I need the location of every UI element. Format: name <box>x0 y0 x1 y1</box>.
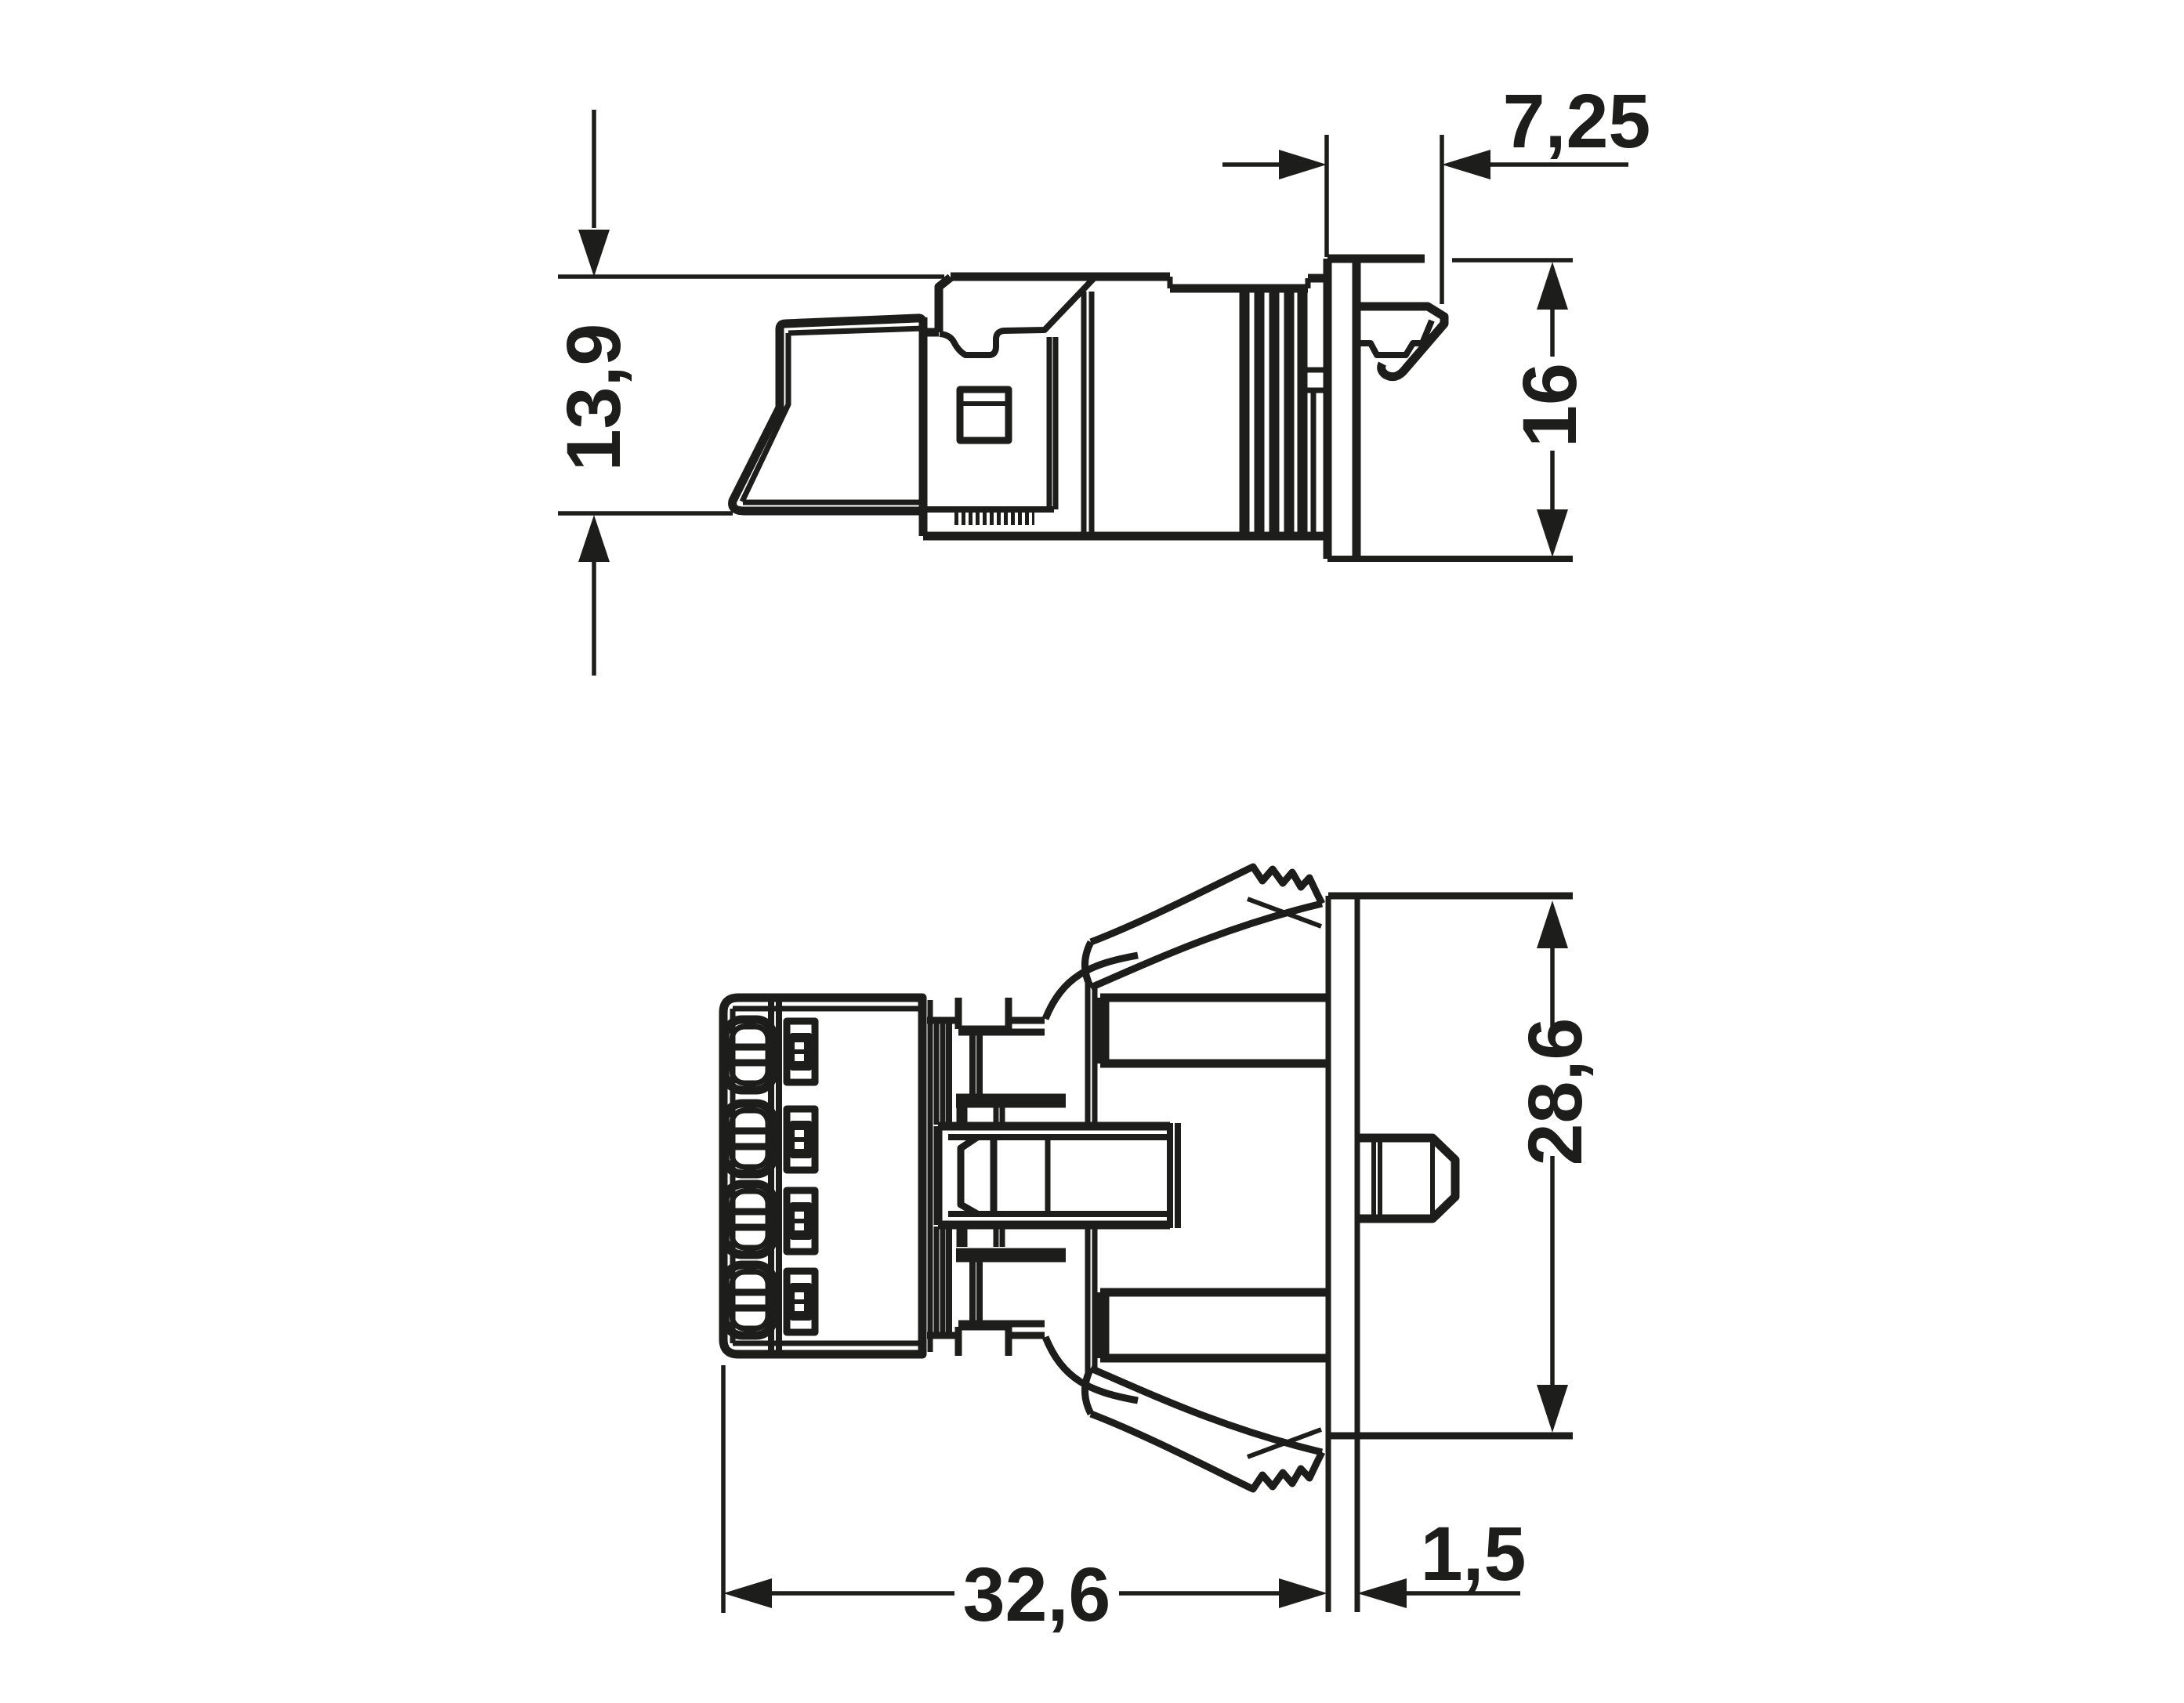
lower-rail-pair <box>956 1252 1066 1259</box>
barrel-joint-lines <box>1049 337 1056 509</box>
pole-opening-3 <box>725 1184 773 1255</box>
pole-inner <box>732 1027 768 1083</box>
latch-hook-face <box>961 1137 994 1214</box>
clamp-slot-3 <box>787 1190 815 1252</box>
spring-upper-edge <box>1091 867 1322 942</box>
housing <box>923 277 1327 536</box>
dimension-1-5: 1,5 <box>1357 1511 1526 1608</box>
dimension-7-25: 7,25 <box>1222 78 1650 304</box>
technical-drawing: 7,25 13,9 16 <box>0 0 2184 1703</box>
dimension-label: 28,6 <box>1512 1018 1598 1166</box>
arrowhead-left <box>1279 150 1327 179</box>
pole-inner <box>732 1191 768 1248</box>
clamp-slot-1 <box>787 1021 815 1082</box>
barrel-rim-lines <box>1084 292 1092 535</box>
dimension-label: 32,6 <box>963 1552 1111 1637</box>
dimension-16: 16 <box>1452 260 1592 557</box>
dimension-label: 16 <box>1507 363 1592 447</box>
pin-inner-lines <box>1374 1138 1432 1219</box>
drawing-svg: 7,25 13,9 16 <box>0 0 2184 1703</box>
clamp-slots <box>787 1021 815 1332</box>
arrowhead-bottom <box>578 515 610 562</box>
extension-line <box>1327 135 1442 304</box>
arrowhead-bottom <box>1537 509 1568 557</box>
arrowhead-right <box>1442 150 1490 179</box>
test-window <box>960 390 1009 440</box>
arrowhead-bottom <box>1537 1385 1568 1433</box>
bottom-support <box>972 1259 980 1324</box>
plug-barrel <box>1049 277 1327 535</box>
upper-rail-pair <box>956 1097 1066 1104</box>
arrowhead-top <box>578 230 610 277</box>
clamp-slot-2 <box>787 1109 815 1170</box>
dimension-label: 7,25 <box>1503 78 1651 164</box>
housing-top-rib <box>939 277 951 332</box>
top-support <box>972 1032 980 1097</box>
slot-spring <box>794 1288 806 1316</box>
pole-inner <box>732 1272 768 1328</box>
arrowhead <box>1357 1578 1407 1608</box>
lower-posts <box>959 1227 1002 1247</box>
upper-arm <box>1100 998 1327 1063</box>
arrowhead-top <box>1537 262 1568 310</box>
slot-spring <box>794 1207 806 1235</box>
spring-end-cap <box>1085 1368 1092 1414</box>
keying-tab-bottom <box>958 1327 1009 1356</box>
lower-arm <box>1100 1292 1327 1358</box>
snap-in-latch <box>1356 306 1444 377</box>
arrowhead-right <box>1279 1578 1327 1608</box>
arrowhead-left <box>723 1578 772 1608</box>
arrowhead-top <box>1537 900 1568 948</box>
spring-lower-edge <box>1091 1414 1322 1489</box>
housing-shoulder-profile <box>940 279 1093 355</box>
beam-inner-lines <box>948 1137 1170 1214</box>
dimension-13-9: 13,9 <box>551 110 944 676</box>
dimension-32-6: 32,6 <box>723 1365 1327 1637</box>
panel-wall <box>1328 896 1573 1612</box>
center-pin <box>1357 1138 1455 1219</box>
slot-spring <box>794 1038 806 1066</box>
dimension-label: 13,9 <box>551 324 636 472</box>
keying-tab-top <box>958 998 1009 1029</box>
lever-inner-top <box>788 328 923 333</box>
center-latch <box>938 984 1327 1372</box>
spring-end-cap <box>1085 942 1092 987</box>
slot-spring <box>794 1125 806 1154</box>
side-view: 7,25 13,9 16 <box>551 78 1650 676</box>
pole-inner <box>732 1111 768 1167</box>
pole-opening-1 <box>725 1020 773 1090</box>
panel-faces <box>1328 896 1357 1612</box>
release-lever <box>733 318 923 511</box>
lever-outline <box>733 318 923 511</box>
pole-opening-2 <box>725 1103 773 1174</box>
dimension-label: 1,5 <box>1421 1511 1527 1596</box>
front-view: 28,6 32,6 1,5 <box>723 867 1598 1637</box>
arm-verticals <box>1088 984 1095 1372</box>
pole-opening-4 <box>725 1265 773 1335</box>
dimension-28-6: 28,6 <box>1512 900 1598 1433</box>
clamp-slot-4 <box>787 1271 815 1332</box>
beam-right-edges <box>1170 1123 1178 1228</box>
